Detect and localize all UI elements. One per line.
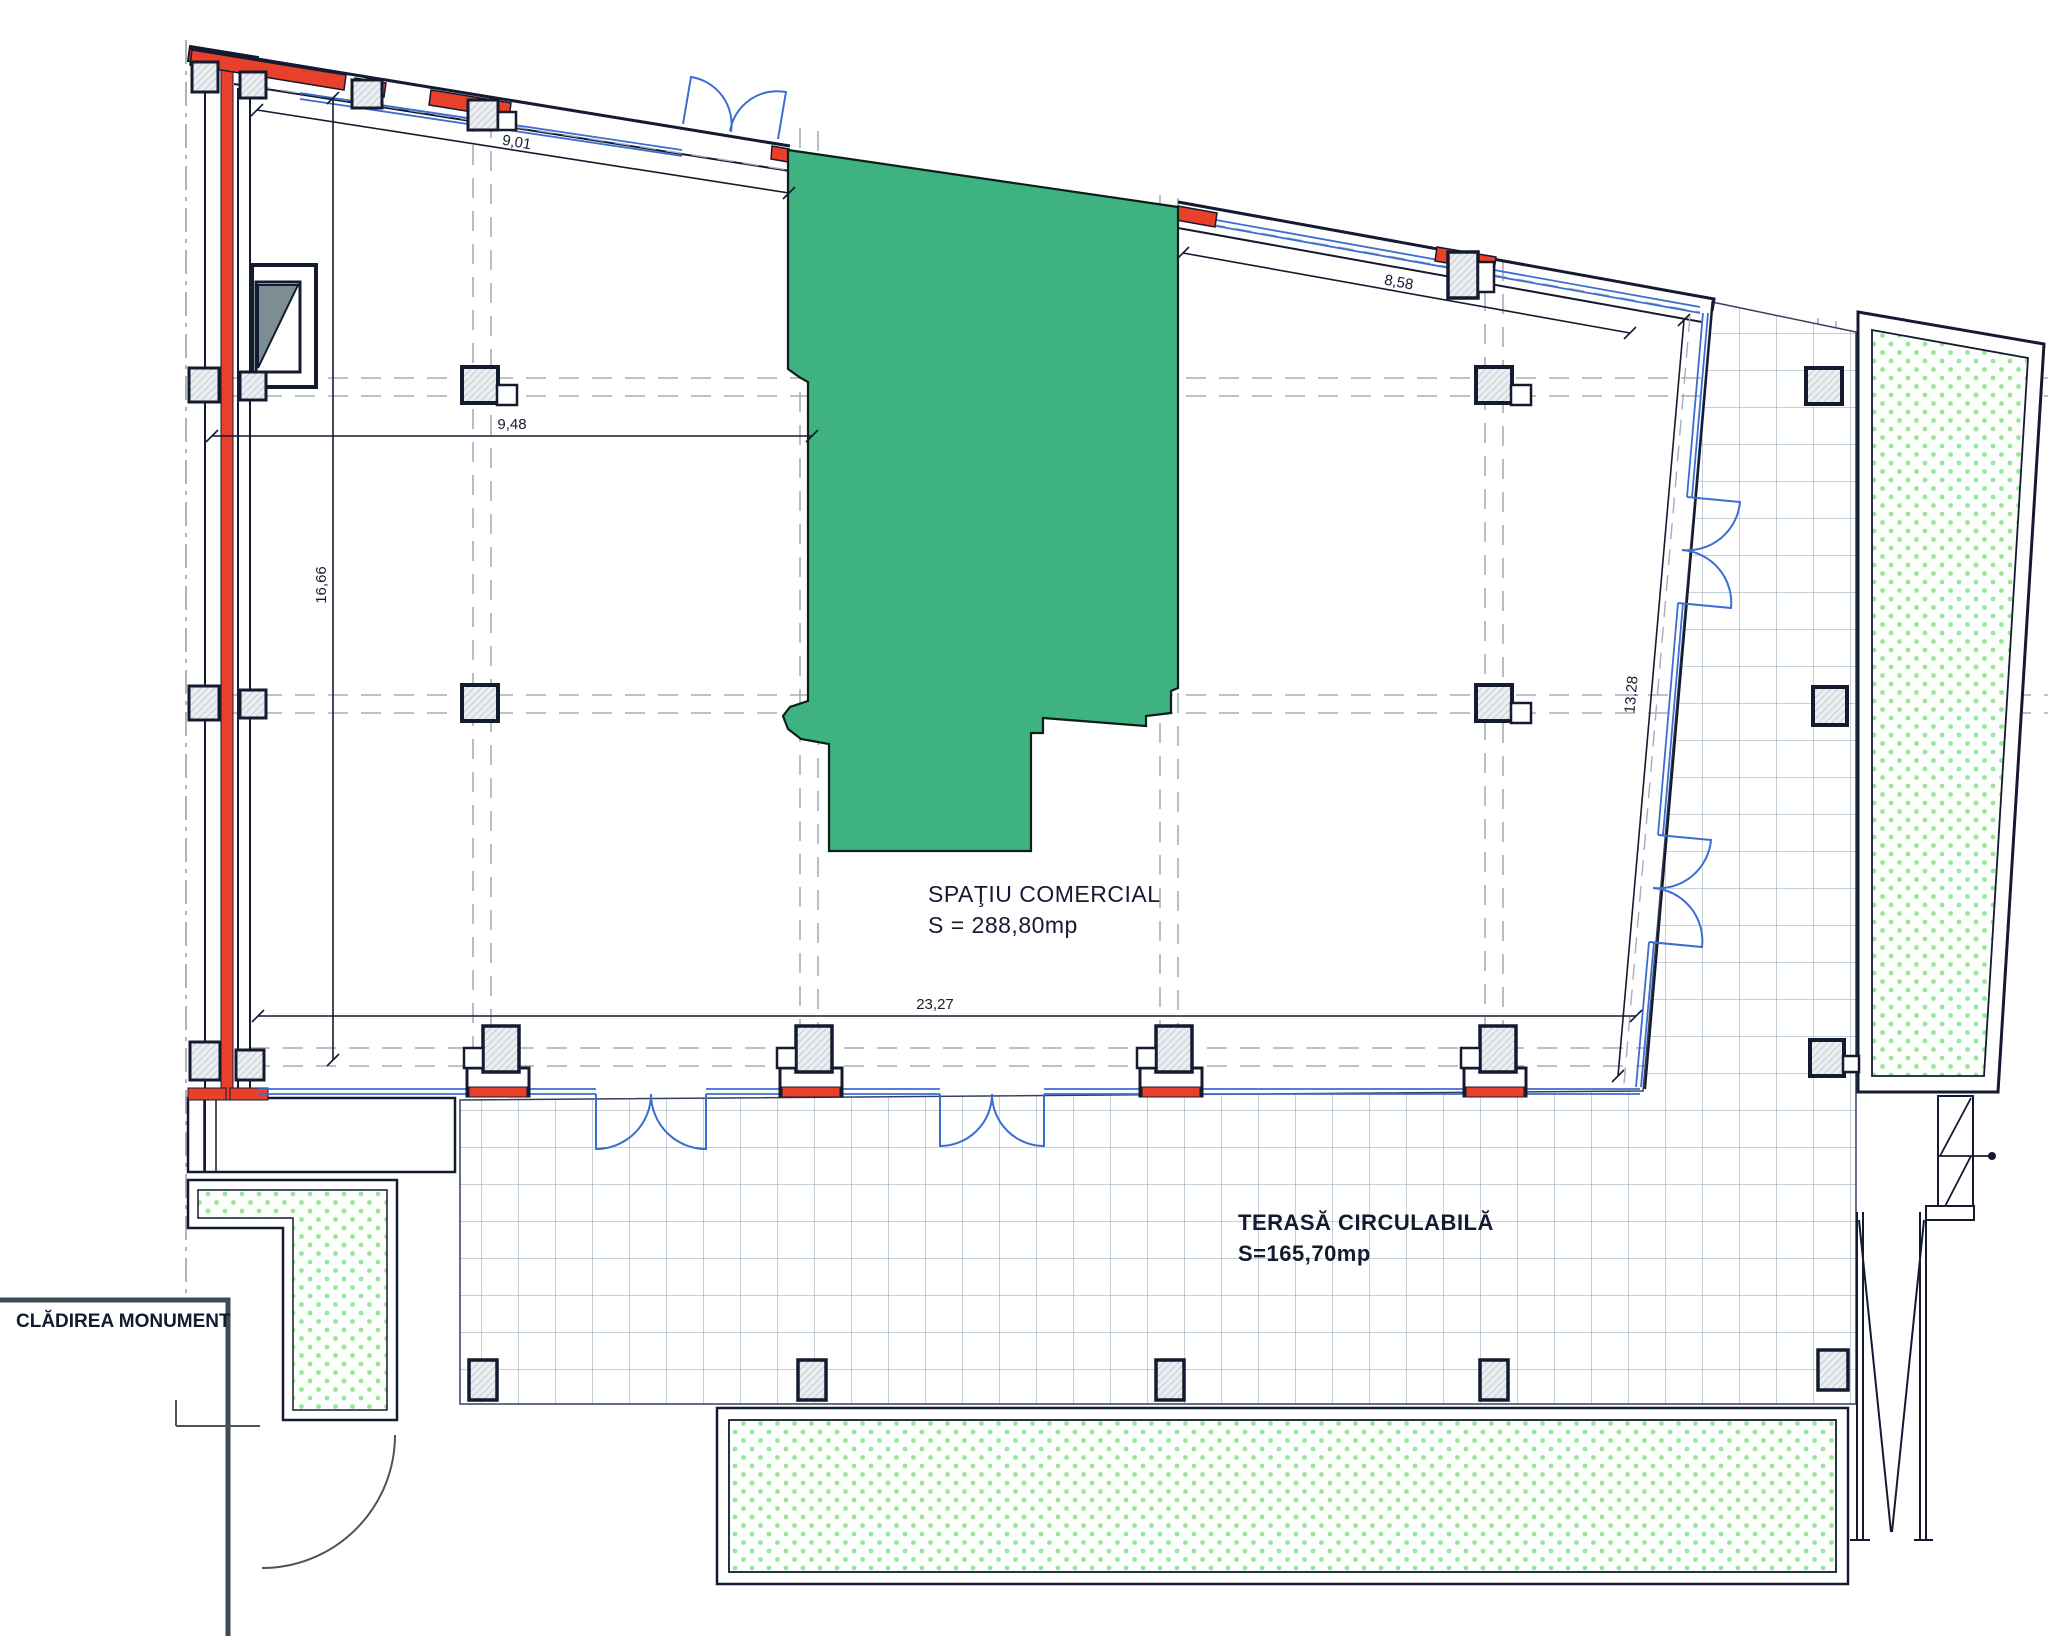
commercial-room-area: S = 288,80mp — [928, 912, 1078, 938]
column — [352, 80, 382, 108]
dimension-label-9-01: 9,01 — [501, 132, 533, 153]
column — [1806, 368, 1842, 404]
column — [236, 1050, 264, 1080]
column — [1476, 367, 1512, 403]
column — [468, 100, 498, 130]
exterior-stairs — [1850, 1096, 1996, 1540]
planting-bed-bottom — [717, 1408, 1848, 1584]
ramp-direction-arrow — [1859, 1220, 1924, 1532]
bottom-glazed-wall — [258, 1089, 1640, 1094]
column — [240, 690, 266, 718]
column — [190, 1042, 220, 1080]
column — [462, 685, 498, 721]
door-swing-top — [683, 77, 732, 132]
column — [462, 367, 498, 403]
column — [1137, 1026, 1202, 1097]
floor-plan-canvas: 9,01 8,58 9,48 16,66 13,28 23,27 SPAŢIU … — [0, 0, 2048, 1636]
left-wall — [188, 46, 268, 1172]
commercial-space-area — [783, 150, 1178, 851]
column — [1476, 685, 1512, 721]
left-wall-red — [221, 58, 233, 1100]
column — [777, 1026, 842, 1097]
commercial-room-name: SPAŢIU COMERCIAL — [928, 881, 1161, 907]
column — [1448, 252, 1478, 298]
shaft-duct — [252, 265, 316, 387]
dimension-label-13-28: 13,28 — [1621, 675, 1641, 714]
column — [1461, 1026, 1526, 1097]
dimension-label-16-66: 16,66 — [313, 566, 330, 604]
dimension-label-9-48: 9,48 — [497, 416, 526, 433]
column — [1810, 1040, 1844, 1076]
column — [1156, 1360, 1184, 1400]
bottom-wall-columns — [464, 1026, 1526, 1097]
column — [192, 62, 218, 92]
floor-plan-page: 9,01 8,58 9,48 16,66 13,28 23,27 SPAŢIU … — [0, 0, 2048, 1636]
wall-red-segment — [771, 146, 789, 162]
monument-door-arc — [262, 1435, 395, 1568]
dimension-label-23-27: 23,27 — [916, 996, 954, 1013]
column — [189, 686, 219, 720]
column — [1818, 1350, 1848, 1390]
terrace-room-area: S=165,70mp — [1238, 1241, 1371, 1266]
column — [1480, 1360, 1508, 1400]
column — [1813, 687, 1847, 725]
monument-parapet-box — [188, 1098, 455, 1172]
column — [469, 1360, 497, 1400]
column — [798, 1360, 826, 1400]
column — [240, 372, 266, 400]
terrace-room-name: TERASĂ CIRCULABILĂ — [1238, 1210, 1494, 1235]
column — [240, 72, 266, 98]
top-wall-right — [1176, 202, 1714, 322]
door-swing-top — [730, 91, 786, 139]
monument-building-name: CLĂDIREA MONUMENT — [16, 1310, 231, 1332]
column — [189, 368, 219, 402]
planting-strip-right — [1858, 312, 2044, 1092]
